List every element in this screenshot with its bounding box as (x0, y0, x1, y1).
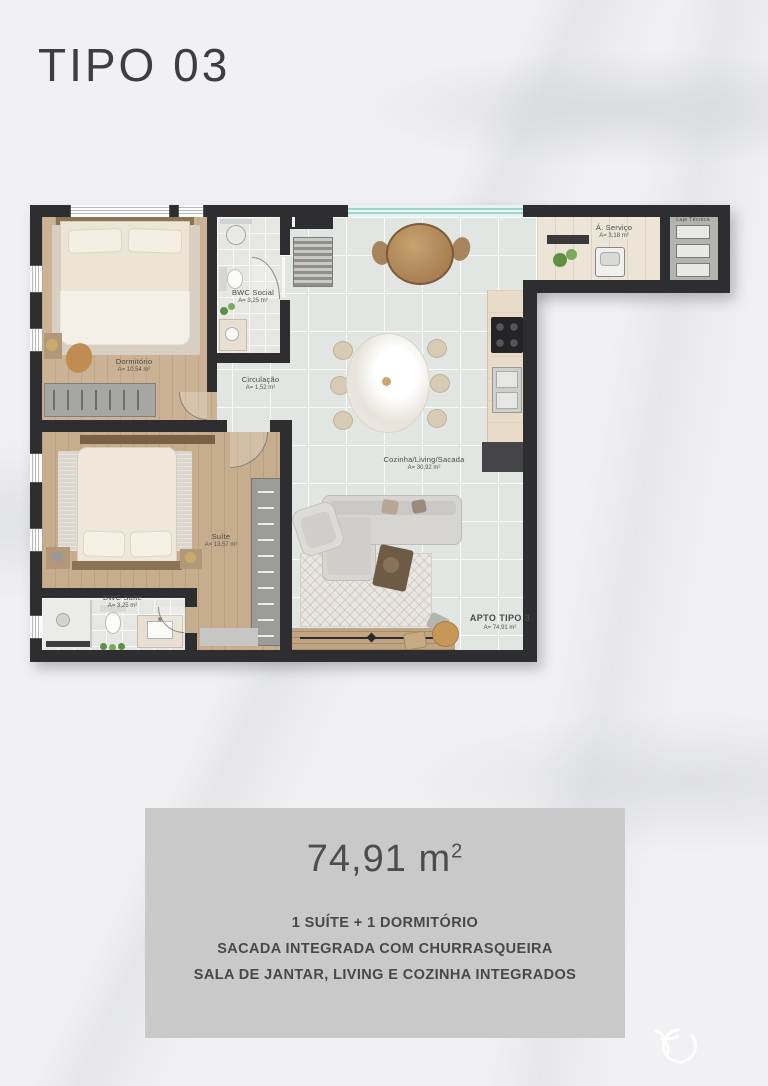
basket (403, 631, 427, 651)
dining-chair (333, 411, 353, 430)
suite-wardrobe (251, 478, 281, 646)
bwc-social-sink (225, 327, 239, 341)
wall-bwc-suite-right (185, 598, 197, 607)
floor-plan: Dormitório A= 10,54 m² BWC Social A= 3,2… (30, 195, 730, 670)
suite-pillow (130, 530, 173, 557)
washer-lid (600, 252, 620, 266)
total-area-exponent: 2 (451, 840, 463, 862)
cafe-table (386, 223, 454, 285)
page-title: TIPO 03 (38, 38, 230, 92)
plant (553, 253, 567, 267)
living-glass-window (348, 205, 523, 217)
kitchen-sink (492, 367, 522, 413)
laje-slot (676, 225, 710, 239)
window (30, 615, 42, 639)
feature-line: SACADA INTEGRADA COM CHURRASQUEIRA (194, 941, 576, 957)
plant (220, 307, 228, 315)
throw-pillow (411, 499, 427, 514)
throw-pillow (381, 499, 399, 515)
shower-drain (56, 613, 70, 627)
suite-lamp (52, 551, 63, 562)
room-label-cozinha-living: Cozinha/Living/Sacada A= 30,92 m² (368, 455, 480, 473)
wall-bwc-suite-right (185, 633, 197, 650)
wall-laje-divider (660, 208, 670, 280)
feature-line: 1 SUÍTE + 1 DORMITÓRIO (194, 915, 576, 931)
wall-right (523, 280, 537, 662)
window (178, 205, 204, 217)
dormitorio-pillow (68, 228, 123, 254)
laje-slot (676, 263, 710, 277)
washing-machine (595, 247, 625, 277)
wall-suite-top (42, 420, 227, 432)
window (30, 265, 42, 293)
suite-mat (200, 628, 258, 646)
room-label-circulacao: Circulação A= 1,52 m² (223, 375, 298, 393)
wall-far-right (718, 205, 730, 293)
bwc-social-toilet (227, 269, 243, 289)
room-label-servico: Á. Serviço A= 3,18 m² (574, 223, 654, 241)
suite-pillow (83, 530, 126, 557)
wall-service-bottom (537, 280, 730, 293)
brand-logo-icon (648, 1018, 712, 1078)
wardrobe-hangers (53, 390, 147, 410)
room-label-apto-tipo-3: APTO TIPO 3 A= 74,91 m² (458, 613, 542, 632)
dining-chair (430, 374, 450, 393)
wall-bwc-social-bottom (207, 353, 290, 363)
plant (118, 643, 125, 650)
coffee-table-tray (383, 557, 399, 573)
wall-suite-right (280, 432, 292, 650)
dining-chair (427, 339, 447, 358)
window (30, 328, 42, 352)
wardrobe-shelves (258, 487, 274, 637)
plant (566, 249, 577, 260)
pouf (432, 621, 459, 647)
bwc-suite-toilet (105, 612, 121, 634)
suite-headboard (72, 561, 182, 570)
laje-slot (676, 244, 710, 258)
dormitorio-lamp (46, 339, 58, 351)
brochure-page: { "page": { "title": "TIPO 03" }, "plan"… (0, 0, 768, 1086)
window (30, 528, 42, 552)
suite-tv-console (80, 435, 215, 444)
wall-bottom (30, 650, 537, 662)
suite-lamp (185, 552, 196, 563)
wall-dormitorio (207, 217, 217, 392)
room-label-laje-tecnica: Laje Técnica (670, 217, 716, 224)
dining-centerpiece (382, 377, 391, 386)
room-label-dormitorio: Dormitório A= 10,54 m² (84, 357, 184, 375)
entry-cabinet (293, 237, 333, 287)
room-label-bwc-social: BWC Social A= 3,25 m² (217, 288, 289, 306)
room-label-bwc-suite: BWC Suíte A= 3,25 m² (85, 593, 160, 611)
plant (100, 643, 107, 650)
dormitorio-duvet (60, 291, 190, 345)
feature-list: 1 SUÍTE + 1 DORMITÓRIO SACADA INTEGRADA … (194, 905, 576, 993)
window (30, 453, 42, 483)
bwc-social-mirror (220, 219, 252, 224)
dining-chair (333, 341, 353, 360)
total-area-unit: m (418, 838, 451, 880)
room-label-suite: Suíte A= 13,57 m² (181, 532, 261, 550)
shower-mat (46, 641, 90, 647)
summary-panel: 74,91 m2 1 SUÍTE + 1 DORMITÓRIO SACADA I… (145, 808, 625, 1038)
total-area: 74,91 m2 (307, 838, 463, 881)
sink-bowl (496, 371, 518, 388)
churrasqueira-cabinet (482, 442, 523, 472)
wall-suite-top (270, 420, 292, 432)
armchair-seat (299, 510, 337, 550)
dormitorio-wardrobe (44, 383, 156, 417)
dormitorio-pillow (128, 228, 183, 254)
cooktop (491, 317, 523, 353)
bwc-social-basin (226, 225, 246, 245)
dining-chair (427, 409, 447, 428)
sink-bowl (496, 392, 518, 409)
window (70, 205, 170, 217)
feature-line: SALA DE JANTAR, LIVING E COZINHA INTEGRA… (194, 967, 576, 983)
wall-bwc-social (280, 217, 290, 255)
total-area-value: 74,91 (307, 838, 407, 880)
